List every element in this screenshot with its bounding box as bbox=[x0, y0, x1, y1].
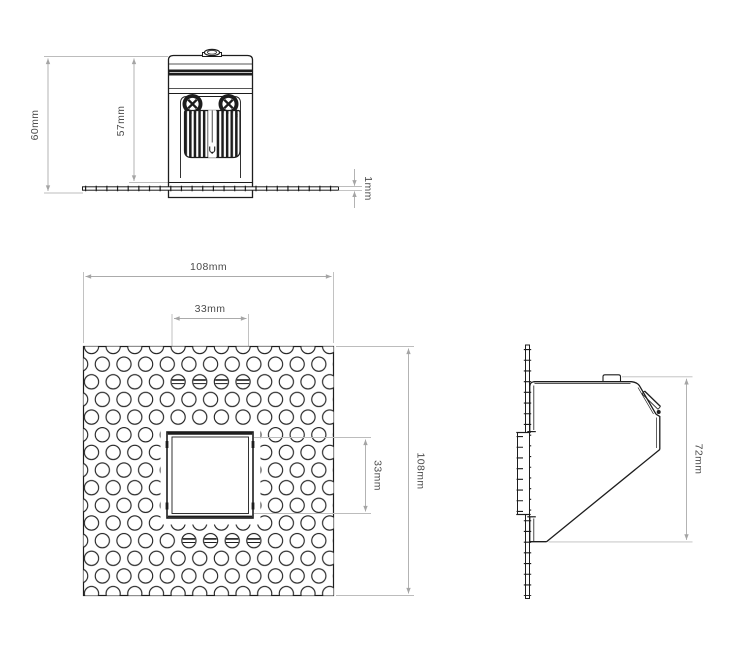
gland-tab bbox=[603, 375, 621, 382]
perforated-plate bbox=[84, 347, 334, 596]
plaster-flange bbox=[83, 187, 339, 190]
dim-label-cutout-width: 33mm bbox=[195, 303, 226, 315]
spring-clip bbox=[252, 441, 255, 448]
dim-label-body-height: 57mm bbox=[115, 106, 127, 137]
dim-label-depth: 72mm bbox=[693, 444, 705, 475]
side-view: 72mm bbox=[516, 345, 704, 599]
diagonal-face bbox=[547, 450, 660, 542]
aperture bbox=[166, 432, 255, 518]
dim-label-plate-height: 108mm bbox=[415, 452, 427, 489]
side-body bbox=[530, 375, 661, 542]
dim-flange-thickness: 1mm bbox=[339, 169, 375, 208]
mounting-bracket bbox=[516, 433, 530, 515]
heatsink bbox=[185, 110, 241, 158]
dim-label-plate-width: 108mm bbox=[190, 261, 227, 273]
spring-clip bbox=[166, 441, 169, 448]
terminal-cover-lines bbox=[169, 64, 253, 94]
drawing-canvas: 60mm 57mm bbox=[0, 0, 740, 661]
technical-drawing: 60mm 57mm bbox=[0, 0, 740, 661]
dim-label-flange-thickness: 1mm bbox=[362, 176, 374, 201]
dim-body-height: 57mm bbox=[115, 59, 134, 182]
face-view: 108mm 33mm bbox=[84, 261, 427, 596]
dim-depth: 72mm bbox=[549, 377, 705, 542]
spring-clip bbox=[166, 503, 169, 510]
front-view: 60mm 57mm bbox=[29, 49, 374, 208]
cable-gland bbox=[203, 49, 222, 56]
spring-clip bbox=[252, 503, 255, 510]
dim-total-height: 60mm bbox=[29, 59, 48, 192]
dim-label-total-height: 60mm bbox=[29, 110, 41, 141]
dim-plate-width: 108mm bbox=[84, 261, 334, 343]
dim-label-cutout-height: 33mm bbox=[372, 460, 384, 491]
